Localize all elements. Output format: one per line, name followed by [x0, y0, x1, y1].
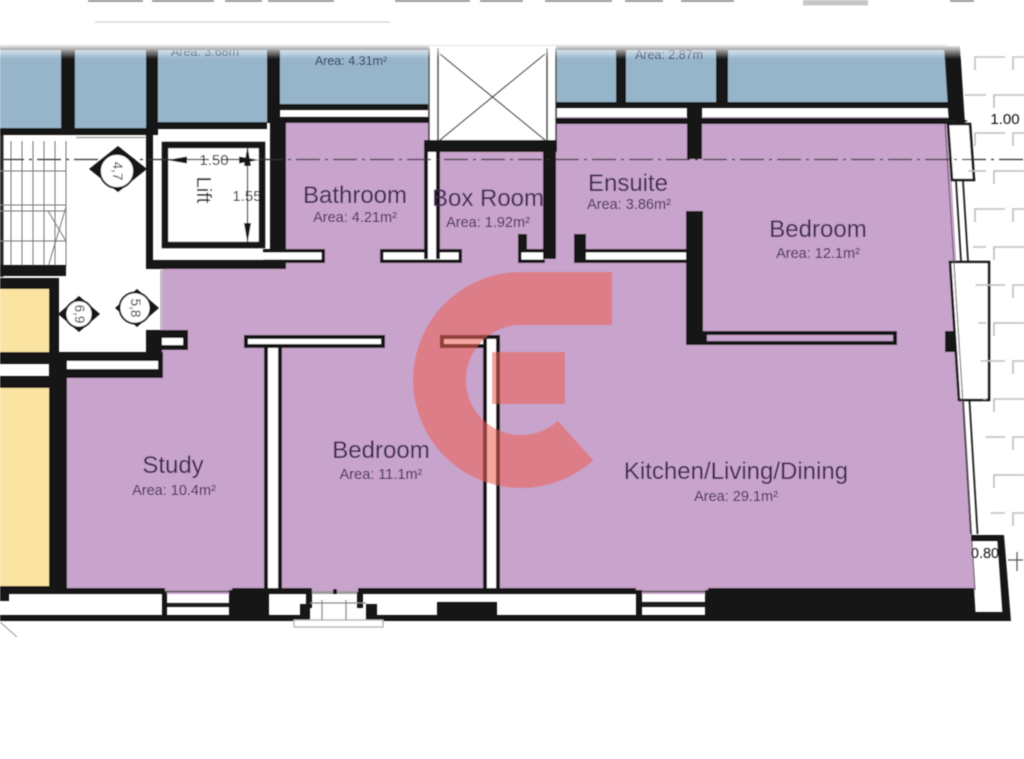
- svg-text:Box Room: Box Room: [432, 185, 544, 212]
- svg-text:4,7: 4,7: [110, 162, 125, 181]
- svg-text:Area: 12.1m²: Area: 12.1m²: [776, 246, 860, 262]
- svg-text:6,9: 6,9: [72, 305, 87, 324]
- svg-text:Area: 10.4m²: Area: 10.4m²: [132, 483, 216, 499]
- svg-text:Bedroom: Bedroom: [332, 437, 429, 464]
- svg-text:1.50: 1.50: [199, 152, 228, 169]
- svg-text:Study: Study: [142, 452, 203, 479]
- svg-text:Lift: Lift: [192, 177, 214, 204]
- svg-text:Ensuite: Ensuite: [588, 170, 668, 197]
- svg-text:Kitchen/Living/Dining: Kitchen/Living/Dining: [624, 458, 848, 485]
- svg-text:0.80: 0.80: [971, 546, 999, 562]
- svg-text:Area: 11.1m²: Area: 11.1m²: [340, 467, 423, 483]
- svg-text:Area: 29.1m²: Area: 29.1m²: [694, 489, 778, 505]
- svg-text:5,8: 5,8: [128, 299, 143, 318]
- svg-text:Bedroom: Bedroom: [769, 216, 866, 243]
- svg-text:1.55: 1.55: [232, 188, 261, 205]
- svg-text:Area: 1.92m²: Area: 1.92m²: [446, 215, 530, 231]
- svg-text:Area: 4.21m²: Area: 4.21m²: [313, 210, 397, 226]
- svg-text:1.00: 1.00: [990, 111, 1019, 128]
- svg-text:Area: 3.86m²: Area: 3.86m²: [587, 197, 671, 213]
- svg-text:Bathroom: Bathroom: [303, 182, 407, 209]
